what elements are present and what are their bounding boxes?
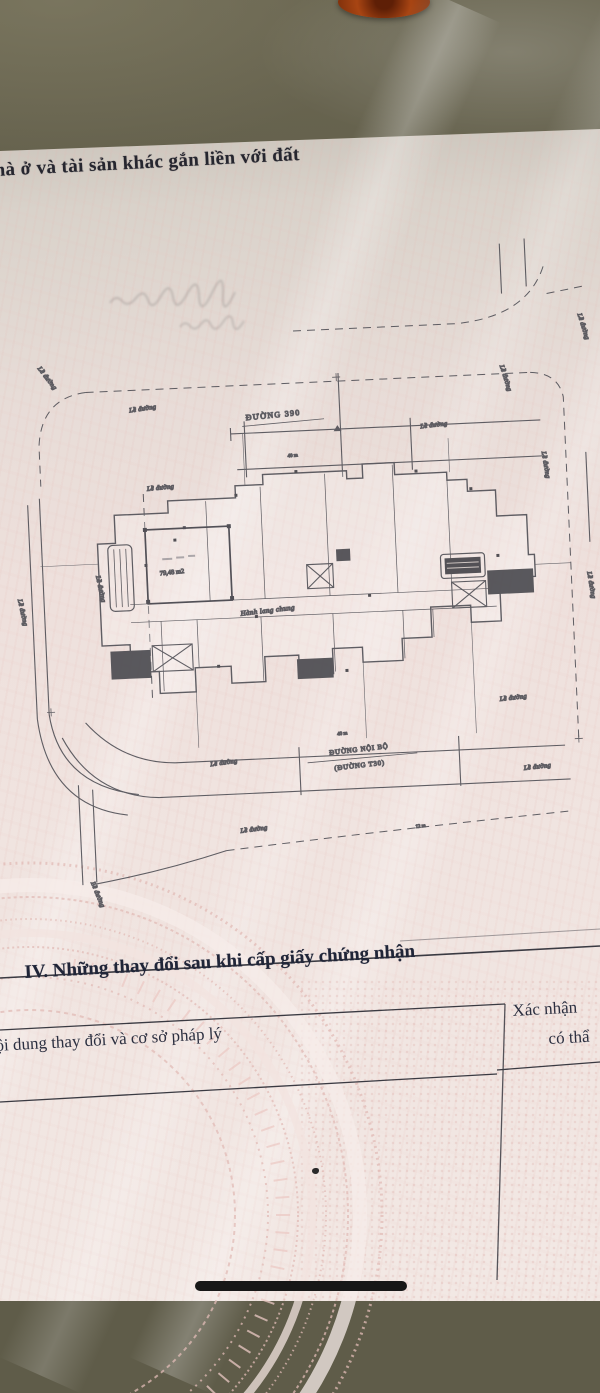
top-street-label: ĐƯỜNG 390 [245, 407, 301, 422]
svg-text:Lề đường: Lề đường [540, 450, 552, 480]
side-dim: 12 m [415, 824, 426, 830]
svg-text:Lề đường: Lề đường [239, 824, 268, 835]
svg-text:Lề đường: Lề đường [209, 758, 238, 769]
home-indicator [195, 1281, 407, 1291]
svg-text:Lề đường: Lề đường [146, 483, 175, 493]
svg-text:Lề đường: Lề đường [585, 570, 597, 600]
plan-contents: ĐƯỜNG 390 40 m ĐƯỜNG NỘI BỘ (ĐƯỜNG T30) … [0, 236, 600, 913]
bottom-street-lines [62, 701, 571, 806]
svg-text:Lề đường: Lề đường [575, 312, 590, 342]
photo-of-land-certificate: { "header": { "fragment": "hà ở và tài s… [0, 0, 600, 1301]
svg-text:Lề đường: Lề đường [498, 363, 513, 393]
svg-text:Lề đường: Lề đường [419, 420, 448, 430]
svg-text:Lề đường: Lề đường [16, 598, 29, 628]
bottom-street-label-2: (ĐƯỜNG T30) [334, 759, 385, 773]
top-street-dim: 40 m [287, 453, 298, 459]
svg-text:Lề đường: Lề đường [35, 365, 58, 392]
bottom-street-dim: 40 m [337, 731, 348, 737]
svg-text:Lề đường: Lề đường [523, 762, 552, 772]
section4-right-column-header-line2: có thẩ [548, 1024, 600, 1049]
svg-text:Lề đường: Lề đường [128, 403, 157, 414]
site-plan-drawing: ĐƯỜNG 390 40 m ĐƯỜNG NỘI BỘ (ĐƯỜNG T30) … [0, 235, 600, 960]
svg-text:Lề đường: Lề đường [498, 693, 527, 703]
